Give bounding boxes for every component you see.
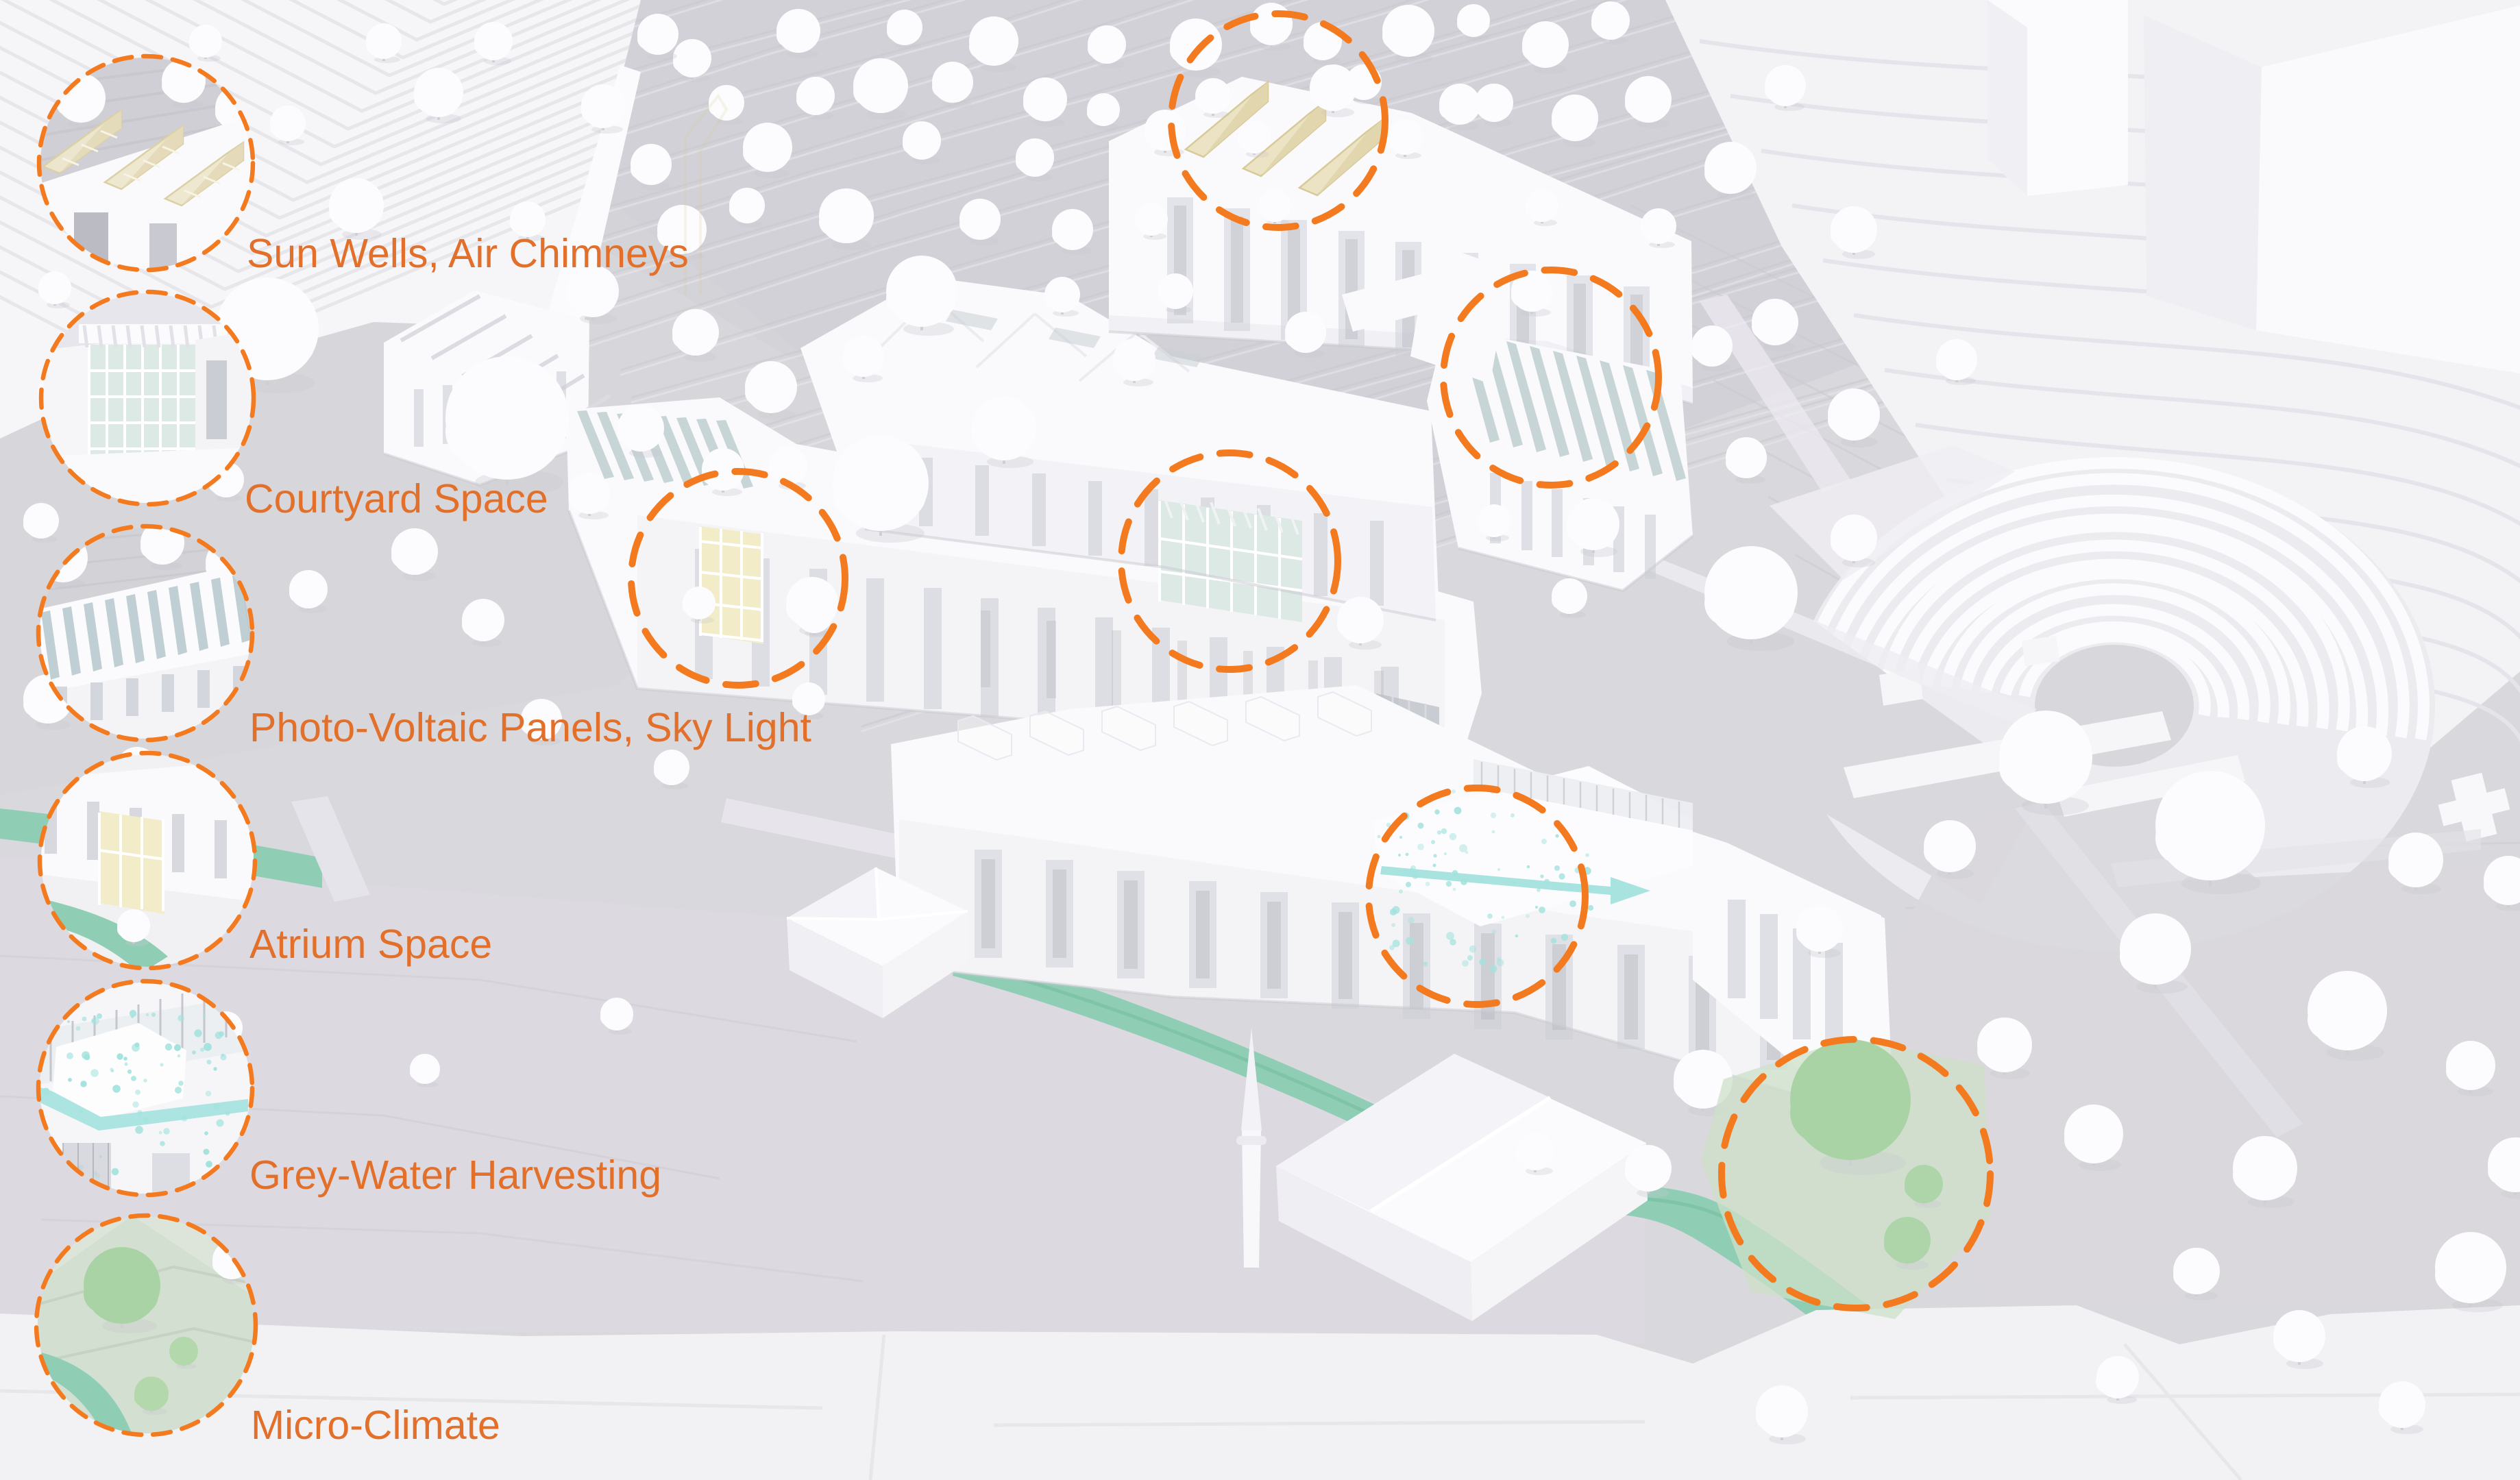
svg-text:Sun Wells, Air Chimneys: Sun Wells, Air Chimneys [247, 231, 689, 276]
svg-text:Micro-Climate: Micro-Climate [251, 1403, 500, 1448]
svg-text:Courtyard Space: Courtyard Space [245, 476, 548, 521]
svg-text:Photo-Voltaic Panels, Sky Ligh: Photo-Voltaic Panels, Sky Light [249, 705, 811, 750]
svg-text:Grey-Water Harvesting: Grey-Water Harvesting [249, 1152, 661, 1198]
svg-text:Atrium Space: Atrium Space [249, 922, 492, 967]
